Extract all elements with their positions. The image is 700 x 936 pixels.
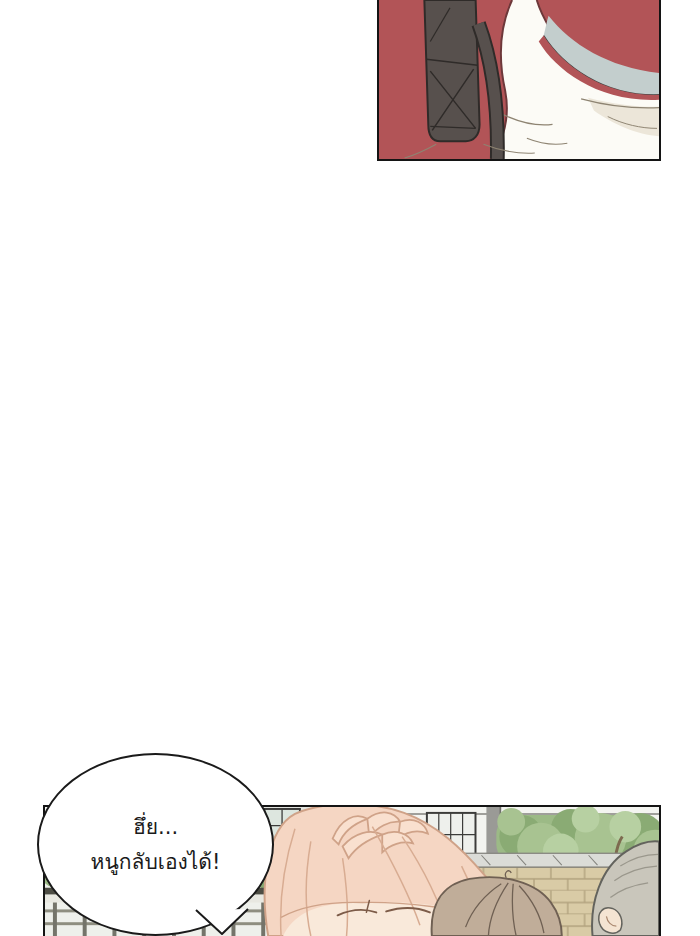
webtoon-page: ฮึ่ย... หนูกลับเองได้! (0, 0, 700, 936)
speech-line-1: ฮึ่ย... (133, 810, 178, 845)
bag-strap-main (424, 0, 479, 141)
bag-strap-body (424, 0, 479, 141)
speech-bubble-tail-shape (196, 909, 248, 934)
speech-bubble-tail (190, 908, 254, 936)
speech-line-2: หนูกลับเองได้! (91, 845, 221, 880)
jacket-scene (379, 0, 659, 159)
panel-top-jacket (377, 0, 661, 161)
